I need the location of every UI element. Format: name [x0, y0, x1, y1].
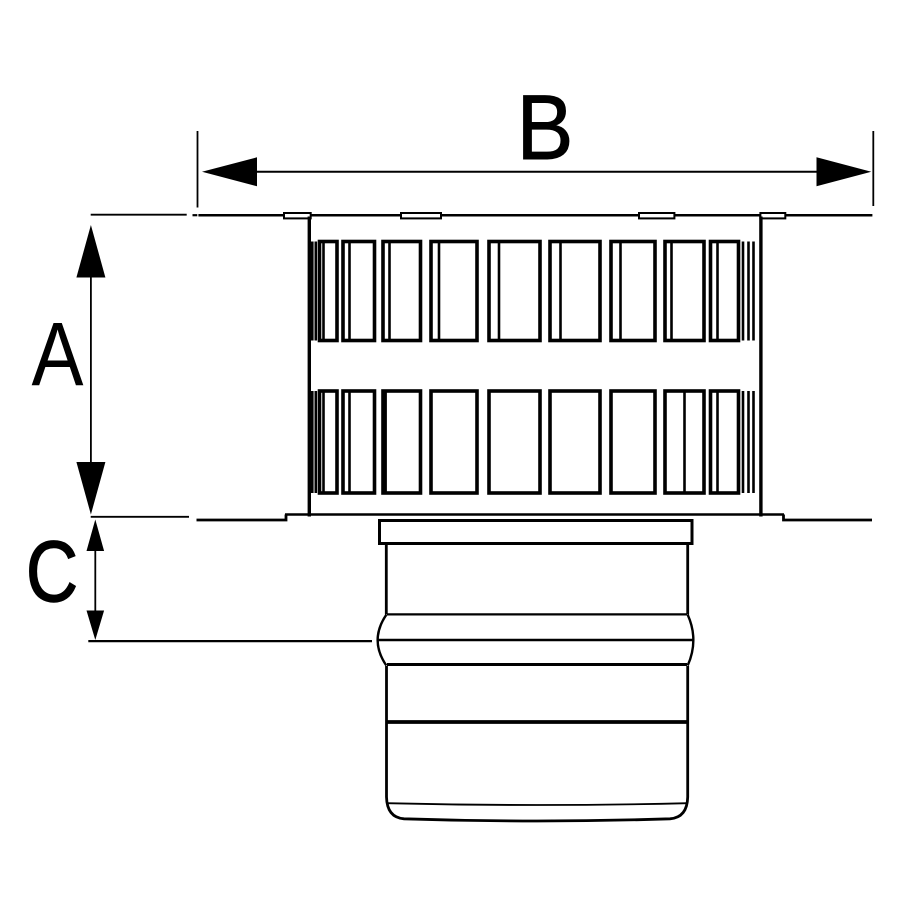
svg-text:C: C: [26, 524, 78, 620]
svg-text:A: A: [32, 305, 84, 405]
svg-text:B: B: [517, 77, 574, 179]
